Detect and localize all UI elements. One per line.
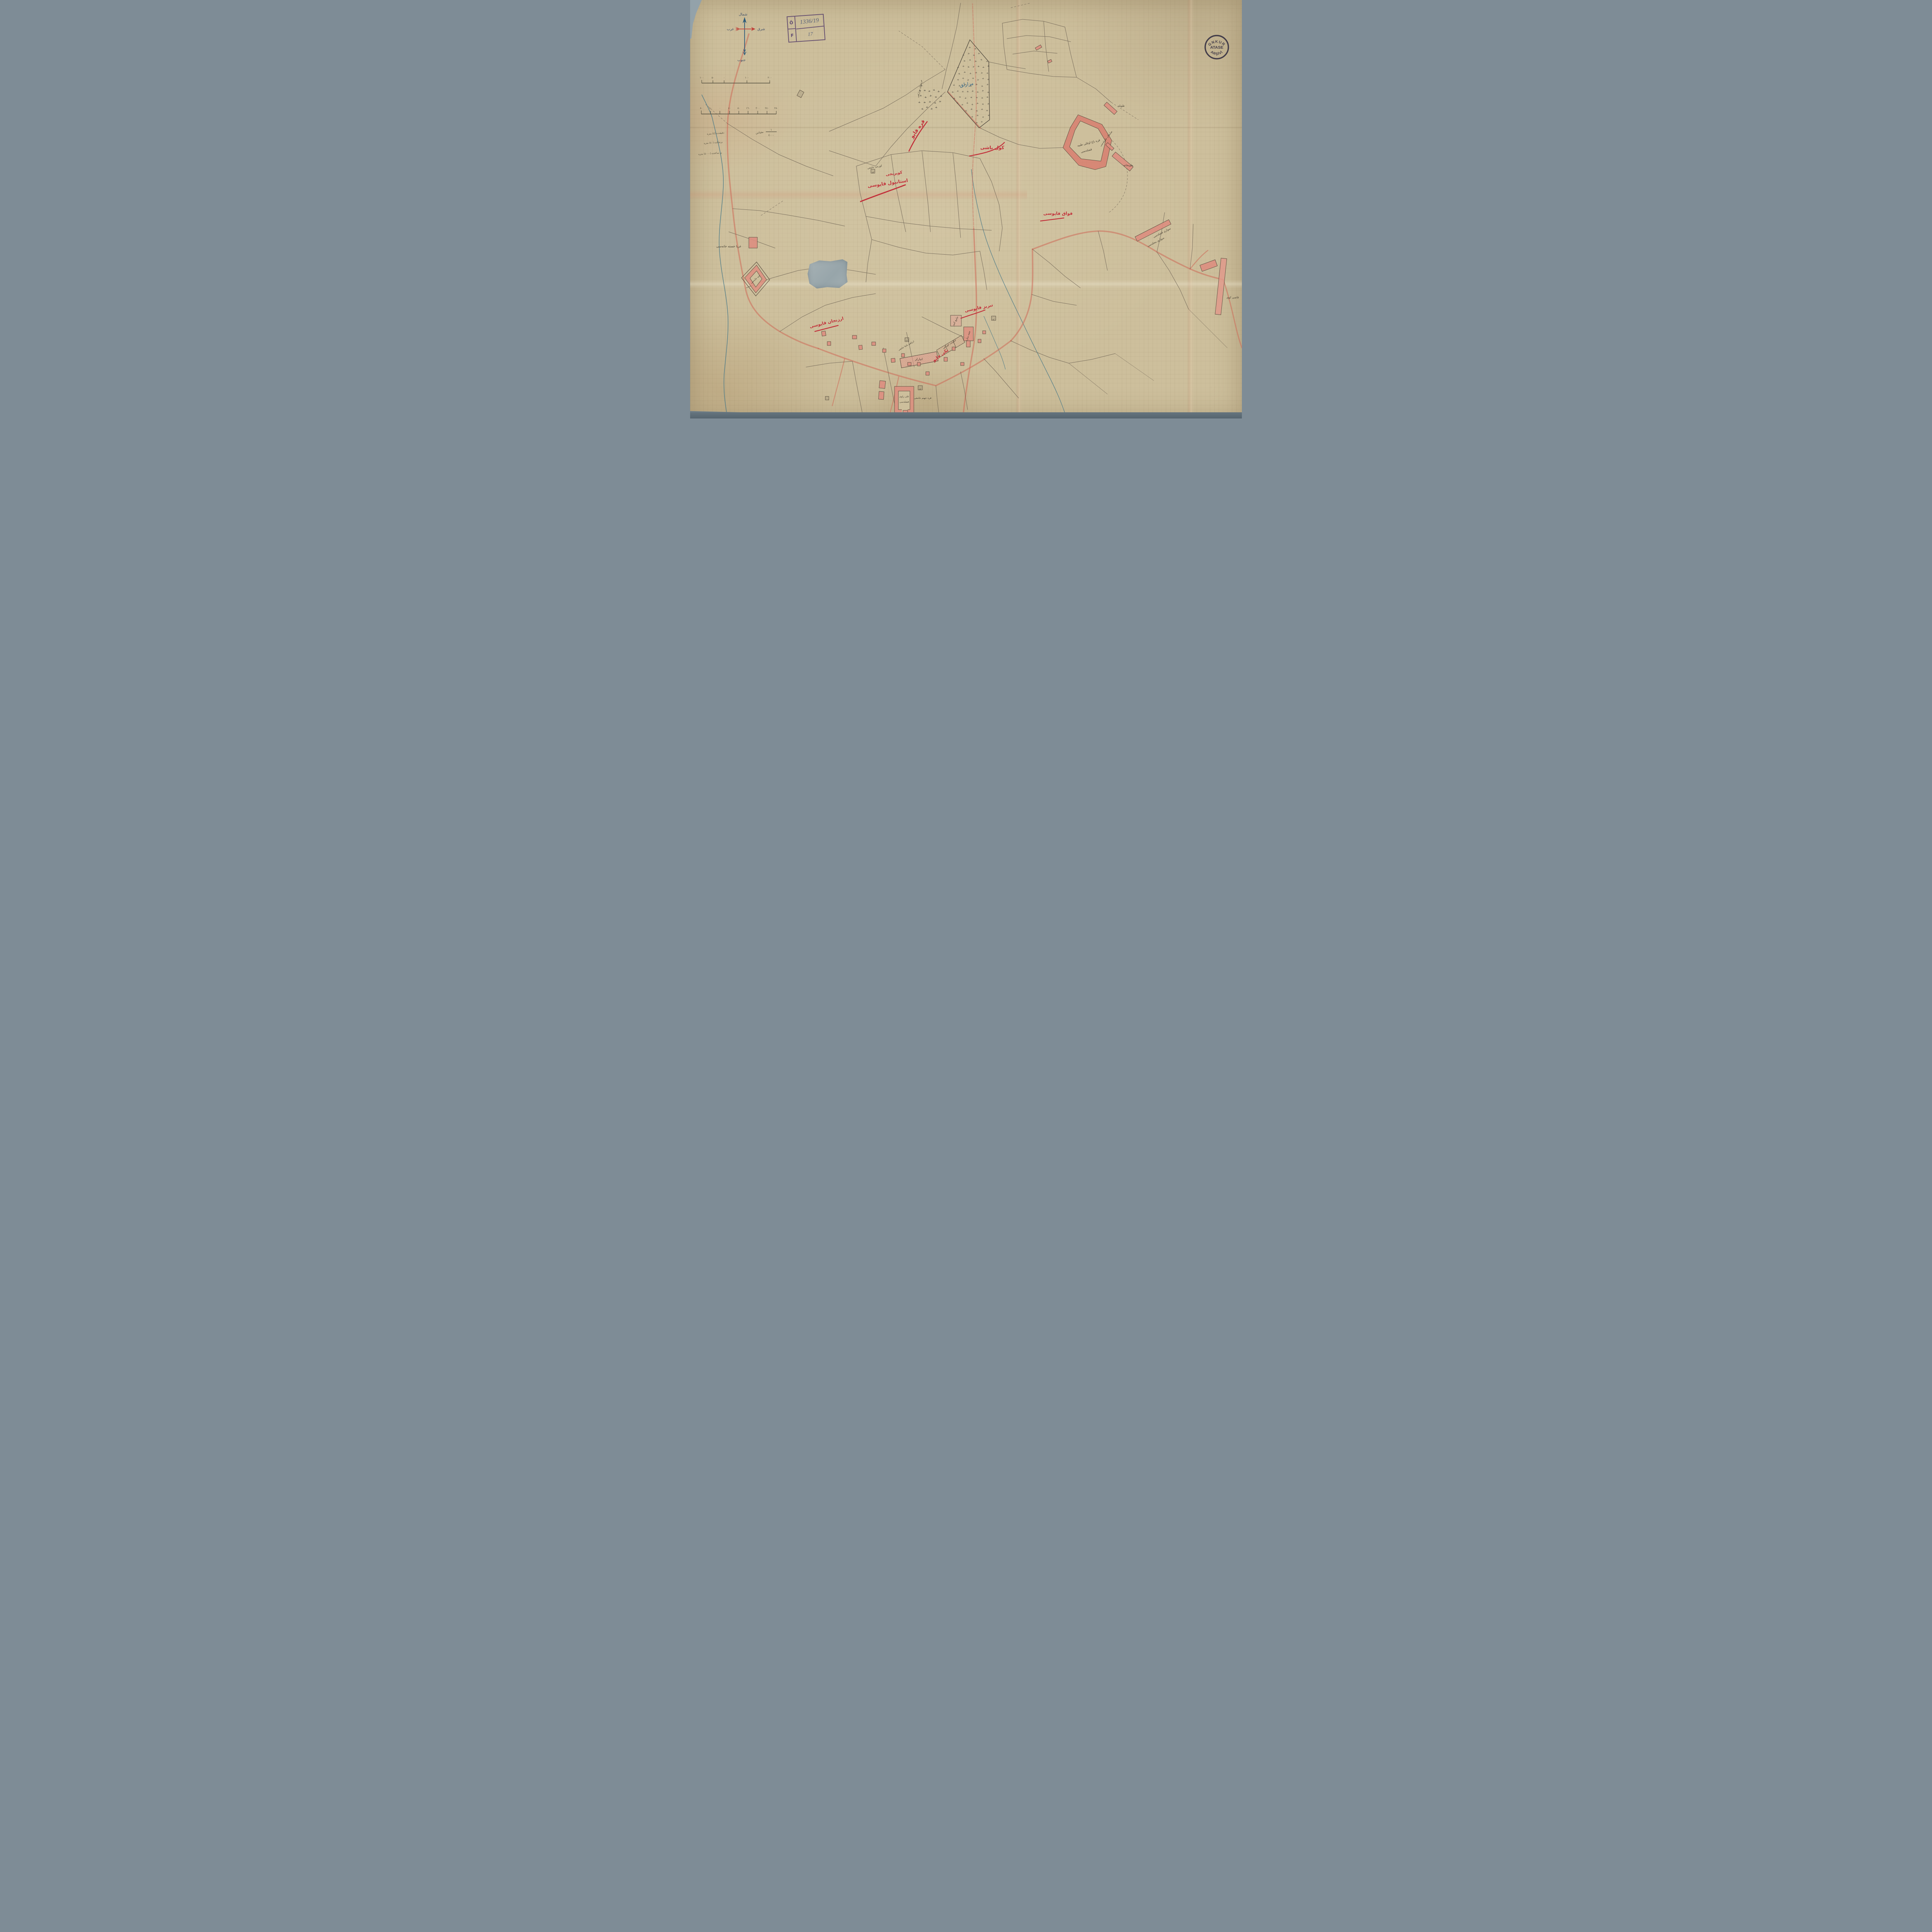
archive-round-stamp: GNKUR ATASE ARŞİVİ (1204, 34, 1230, 60)
stable-label: طويله (1118, 104, 1125, 107)
compass-rose: شمال جنوب شرق غرب (727, 13, 765, 62)
grave-mark (978, 65, 980, 67)
grave-mark (973, 66, 975, 68)
grave-mark (986, 83, 989, 85)
svg-text:٢٠٠: ٢٠٠ (756, 107, 760, 110)
gate-tebriz-label: تبريز قاپوسى (964, 302, 993, 313)
grave-mark (970, 108, 973, 110)
grave-mark (957, 90, 959, 92)
ali-kisla-label1: على راوى (899, 395, 909, 398)
grave-mark (969, 59, 971, 61)
grave-mark (958, 73, 961, 75)
catalog-key-1: Ö (787, 17, 796, 29)
grave-mark (935, 96, 937, 98)
grave-mark (971, 104, 973, 105)
scale-note: دقيقه‌ده (٤) متره (707, 131, 724, 135)
grave-mark (982, 103, 984, 105)
compass-east-label: شرق (757, 27, 765, 31)
grave-mark (981, 121, 983, 123)
cemetery-label: مزارلق (959, 81, 974, 88)
grave-mark (940, 95, 942, 97)
grave-mark (921, 108, 923, 110)
grave-mark (918, 101, 920, 103)
buildings (742, 45, 1227, 418)
grave-mark (937, 90, 940, 92)
svg-text:٨٠: ٨٠ (700, 107, 703, 110)
grave-mark (964, 60, 966, 61)
svg-text:ARŞİVİ: ARŞİVİ (1210, 50, 1223, 56)
svg-text:٢٨٠: ٢٨٠ (774, 107, 778, 110)
scale-ratio-den: ٤٠٠٠ (768, 134, 774, 137)
svg-text:١٦٠: ١٦٠ (746, 107, 750, 110)
gate-north-label: قره قاپو (909, 119, 927, 140)
grave-mark (982, 90, 984, 92)
black-labels: غربا خسته خانه‌سى جبه خانه‌سى على راوى ق… (716, 80, 1239, 403)
grave-mark (970, 97, 972, 99)
grave-mark (962, 65, 964, 67)
map-drawing: شمال جنوب شرق غرب ١٠٠ ٥٠ ٠ ١٠٠ ٢٠٠ (690, 0, 1242, 418)
grave-mark (923, 102, 925, 103)
dashed-tracks (706, 3, 1138, 216)
grave-mark (971, 90, 973, 92)
grave-mark (929, 101, 931, 103)
kadi-koy-label: قاضى كوى (1226, 296, 1239, 299)
grave-mark (982, 78, 984, 80)
stamp-arc-bottom: ARŞİVİ (1210, 50, 1223, 56)
grave-mark (968, 66, 970, 68)
grave-mark (957, 79, 959, 80)
grave-mark (957, 66, 959, 68)
grave-mark (982, 116, 984, 118)
grave-mark (981, 72, 983, 74)
grave-mark (976, 114, 978, 116)
grave-mark (964, 71, 966, 73)
grave-mark (962, 77, 964, 79)
svg-text:٤٠: ٤٠ (709, 107, 712, 110)
grave-mark (930, 108, 932, 109)
grave-mark (980, 59, 983, 61)
catalog-stamp-box: Ö 1336/19 F 17 (787, 14, 826, 43)
mosque-mark: ن (993, 318, 994, 320)
streams (702, 95, 1066, 416)
kara-cehennem-label: قره جهنم جامعى (914, 396, 932, 400)
scanner-bed-edge (690, 412, 1242, 418)
grave-mark (939, 100, 941, 102)
scale-ratio-caption: مقياس (755, 131, 764, 135)
grave-mark (968, 53, 970, 54)
grave-mark (969, 46, 971, 48)
mosque-mark: ب (906, 339, 908, 342)
grave-mark (987, 91, 989, 93)
svg-text:٤٠: ٤٠ (728, 107, 731, 110)
scale-bars: ١٠٠ ٥٠ ٠ ١٠٠ ٢٠٠ ٨٠ ٤٠ ٠ ٤٠ ٨٠ ١٦٠ (698, 76, 778, 156)
grave-mark (971, 116, 973, 117)
grave-mark (925, 96, 927, 98)
scale-note: برنجكده (٤٠) متره (704, 141, 723, 145)
grave-mark (935, 106, 937, 108)
scale-note: بر ساعتده (٤٠٠٠) متره (698, 151, 722, 156)
grave-mark (969, 73, 971, 74)
grave-mark (976, 102, 978, 104)
svg-text:٠: ٠ (719, 107, 721, 110)
scale-tick: ٥٠ (712, 76, 714, 79)
gate-erzincan-label: ارزنجان قاپوسى (809, 316, 844, 329)
stamp-center: ATASE (1210, 45, 1223, 50)
grave-mark (953, 84, 955, 86)
grave-mark (987, 103, 990, 105)
cavalry-label2: سوارى محله‌سى (1147, 236, 1165, 248)
grave-mark (977, 91, 979, 93)
scale-tick: ١٠٠ (745, 76, 749, 79)
ibrahim-mosque-label: ابراهيم پاشا جامعى (898, 340, 915, 352)
map-scan: شمال جنوب شرق غرب ١٠٠ ٥٠ ٠ ١٠٠ ٢٠٠ (690, 0, 1242, 418)
grave-mark (978, 53, 980, 54)
grave-mark (933, 89, 935, 91)
grave-mark (981, 85, 983, 87)
grave-mark (964, 97, 967, 99)
compass-north-label: شمال (739, 13, 747, 17)
svg-text:٢٤٠: ٢٤٠ (765, 107, 769, 110)
compass-south-label: جنوب (737, 58, 745, 62)
scale-tick: ١٠٠ (700, 76, 704, 79)
christian-cemetery-label: خرستيان مزارلغى (917, 80, 923, 98)
catalog-key-2: F (788, 29, 797, 42)
grave-mark (959, 96, 961, 98)
paper-repair-patch (807, 259, 848, 289)
grave-mark (972, 77, 975, 79)
hospital-label: غربا خسته خانه‌سى (716, 245, 741, 248)
catalog-value-2: 17 (796, 27, 825, 41)
grave-mark (952, 91, 954, 93)
grave-mark (981, 97, 983, 99)
gate-west-label2: استانبول قاپوسى (867, 178, 908, 189)
grave-mark (977, 79, 979, 81)
svg-text:٨٠: ٨٠ (738, 107, 740, 110)
scale-tick: ٢٠٠ (768, 76, 772, 79)
ali-kisla-label2: قشله‌سى (900, 401, 909, 403)
grave-mark (929, 95, 932, 97)
mosque-mark: ن (919, 387, 921, 390)
gate-kavak-label: قواق قاپوسى (1043, 211, 1073, 216)
compass-west-label: غرب (727, 27, 734, 31)
grave-mark (920, 95, 922, 96)
mosques (797, 90, 996, 400)
grave-mark (986, 72, 989, 74)
gurcu-mosque-label: كورجى جامعى (867, 164, 883, 170)
grave-mark (981, 109, 983, 110)
grave-mark (967, 91, 969, 92)
grave-mark (967, 79, 969, 81)
artillery-label: طوبخانه (1123, 163, 1133, 167)
scale-ratio-num: ١ (770, 128, 772, 131)
scale-tick: ٠ (723, 76, 725, 79)
warehouses-label: انبارلر (915, 357, 923, 361)
mosque-mark: ى (872, 171, 874, 173)
grave-mark (923, 89, 926, 91)
grave-mark (928, 90, 930, 92)
grave-mark (983, 66, 985, 68)
grave-mark (986, 110, 988, 111)
grave-mark (986, 96, 988, 98)
grave-mark (926, 106, 928, 108)
grave-mark (961, 104, 963, 105)
red-roads (727, 4, 1242, 418)
grave-mark (962, 91, 964, 92)
streets (728, 3, 1227, 418)
grave-mark (966, 102, 968, 104)
